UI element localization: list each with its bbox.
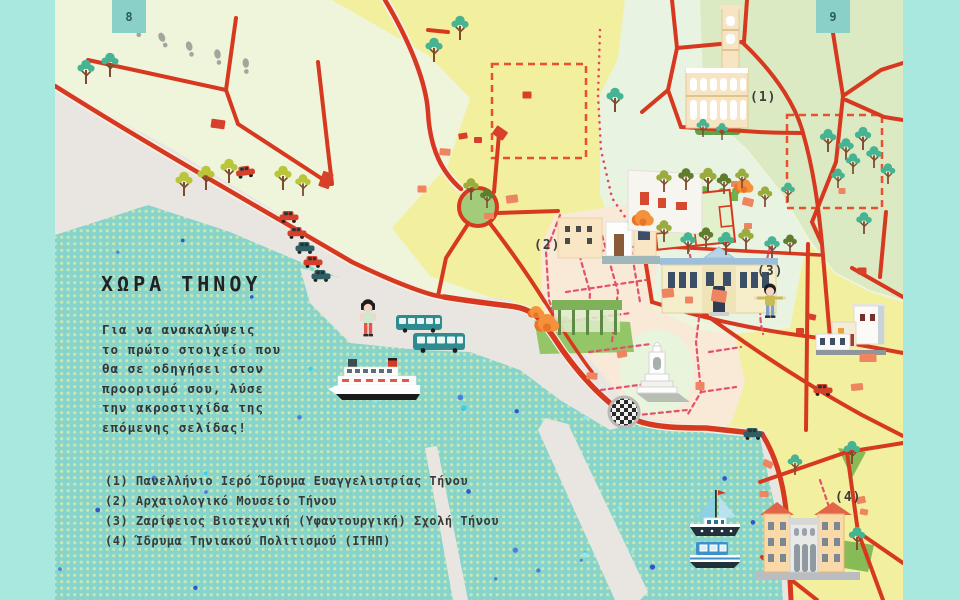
- legend-item: (3) Ζαρίφειος Βιοτεχνική (Υφαντουργική) …: [105, 511, 499, 531]
- legend-item: (1) Πανελλήνιο Ιερό Ίδρυμα Ευαγγελιστρία…: [105, 471, 499, 491]
- page-title: ΧΩΡΑ ΤΗΝΟΥ: [101, 272, 261, 296]
- building-block: [685, 297, 693, 304]
- intro-text: Για να ανακαλύψειςτο πρώτο στοιχείο πουθ…: [102, 320, 281, 437]
- sea-dot: [650, 564, 655, 569]
- building-block: [474, 137, 482, 143]
- bus-icon: [413, 333, 465, 353]
- sea-dot: [387, 440, 390, 443]
- building-block: [418, 186, 427, 193]
- sea-dot: [536, 568, 540, 572]
- building-block: [858, 268, 867, 275]
- legend-item: (2) Αρχαιολογικό Μουσείο Τήνου: [105, 491, 499, 511]
- building-block: [744, 223, 752, 229]
- sea-dot: [193, 586, 197, 590]
- sea-dot: [458, 395, 464, 401]
- map-marker: (3): [757, 264, 783, 279]
- bus-station: [552, 300, 622, 335]
- building-block: [796, 328, 804, 334]
- map-marker: (4): [835, 490, 861, 505]
- building-block: [506, 194, 519, 204]
- page-number-right: 9: [816, 0, 850, 33]
- sea-dot: [308, 367, 312, 371]
- building-block: [839, 188, 846, 194]
- sea-dot: [116, 251, 119, 254]
- sea-dot: [513, 547, 518, 552]
- map-legend: (1) Πανελλήνιο Ιερό Ίδρυμα Ευαγγελιστρία…: [105, 471, 499, 551]
- sea-dot: [631, 551, 634, 554]
- intro-line: επόμενης σελίδας!: [102, 418, 281, 438]
- sea-dot: [582, 552, 587, 557]
- building-block: [439, 148, 451, 156]
- building-block: [760, 491, 769, 497]
- map-marker: (2): [534, 238, 560, 253]
- building-block: [662, 288, 675, 298]
- intro-line: το πρώτο στοιχείο που: [102, 340, 281, 360]
- sea-dot: [515, 409, 519, 413]
- building-block: [586, 372, 597, 380]
- sea-dot: [494, 577, 497, 580]
- sea-dot: [462, 405, 467, 410]
- intro-line: την ακροστιχίδα της: [102, 398, 281, 418]
- building-block: [484, 213, 494, 219]
- intro-line: προορισμό σου, λύσε: [102, 379, 281, 399]
- sea-dot: [580, 559, 583, 562]
- intro-line: θα σε οδηγήσει στον: [102, 359, 281, 379]
- sea-dot: [58, 567, 62, 571]
- building-block: [860, 354, 877, 362]
- side-strip-left: [0, 0, 55, 600]
- side-strip-right: [903, 0, 960, 600]
- intro-line: Για να ανακαλύψεις: [102, 320, 281, 340]
- sea-dot: [722, 476, 727, 481]
- building-block: [696, 382, 705, 390]
- building-block: [851, 383, 864, 391]
- sea-dot: [95, 508, 100, 513]
- legend-item: (4) Ίδρυμα Τηνιακού Πολιτισμού (ΙΤΗΠ): [105, 531, 499, 551]
- sea-dot: [297, 415, 302, 420]
- page-number-left: 8: [112, 0, 146, 33]
- sea-dot: [517, 568, 520, 571]
- map-marker: (1): [750, 90, 776, 105]
- sea-dot: [583, 416, 587, 420]
- book-spread: 8 9 ΧΩΡΑ ΤΗΝΟΥ Για να ανακαλύψειςτο πρώτ…: [0, 0, 960, 600]
- building-block: [711, 289, 728, 303]
- building-block: [523, 92, 532, 99]
- checkered-circle: [609, 397, 639, 427]
- sea-dot: [181, 239, 185, 243]
- sea-dot: [751, 520, 756, 525]
- sea-dot: [618, 506, 622, 510]
